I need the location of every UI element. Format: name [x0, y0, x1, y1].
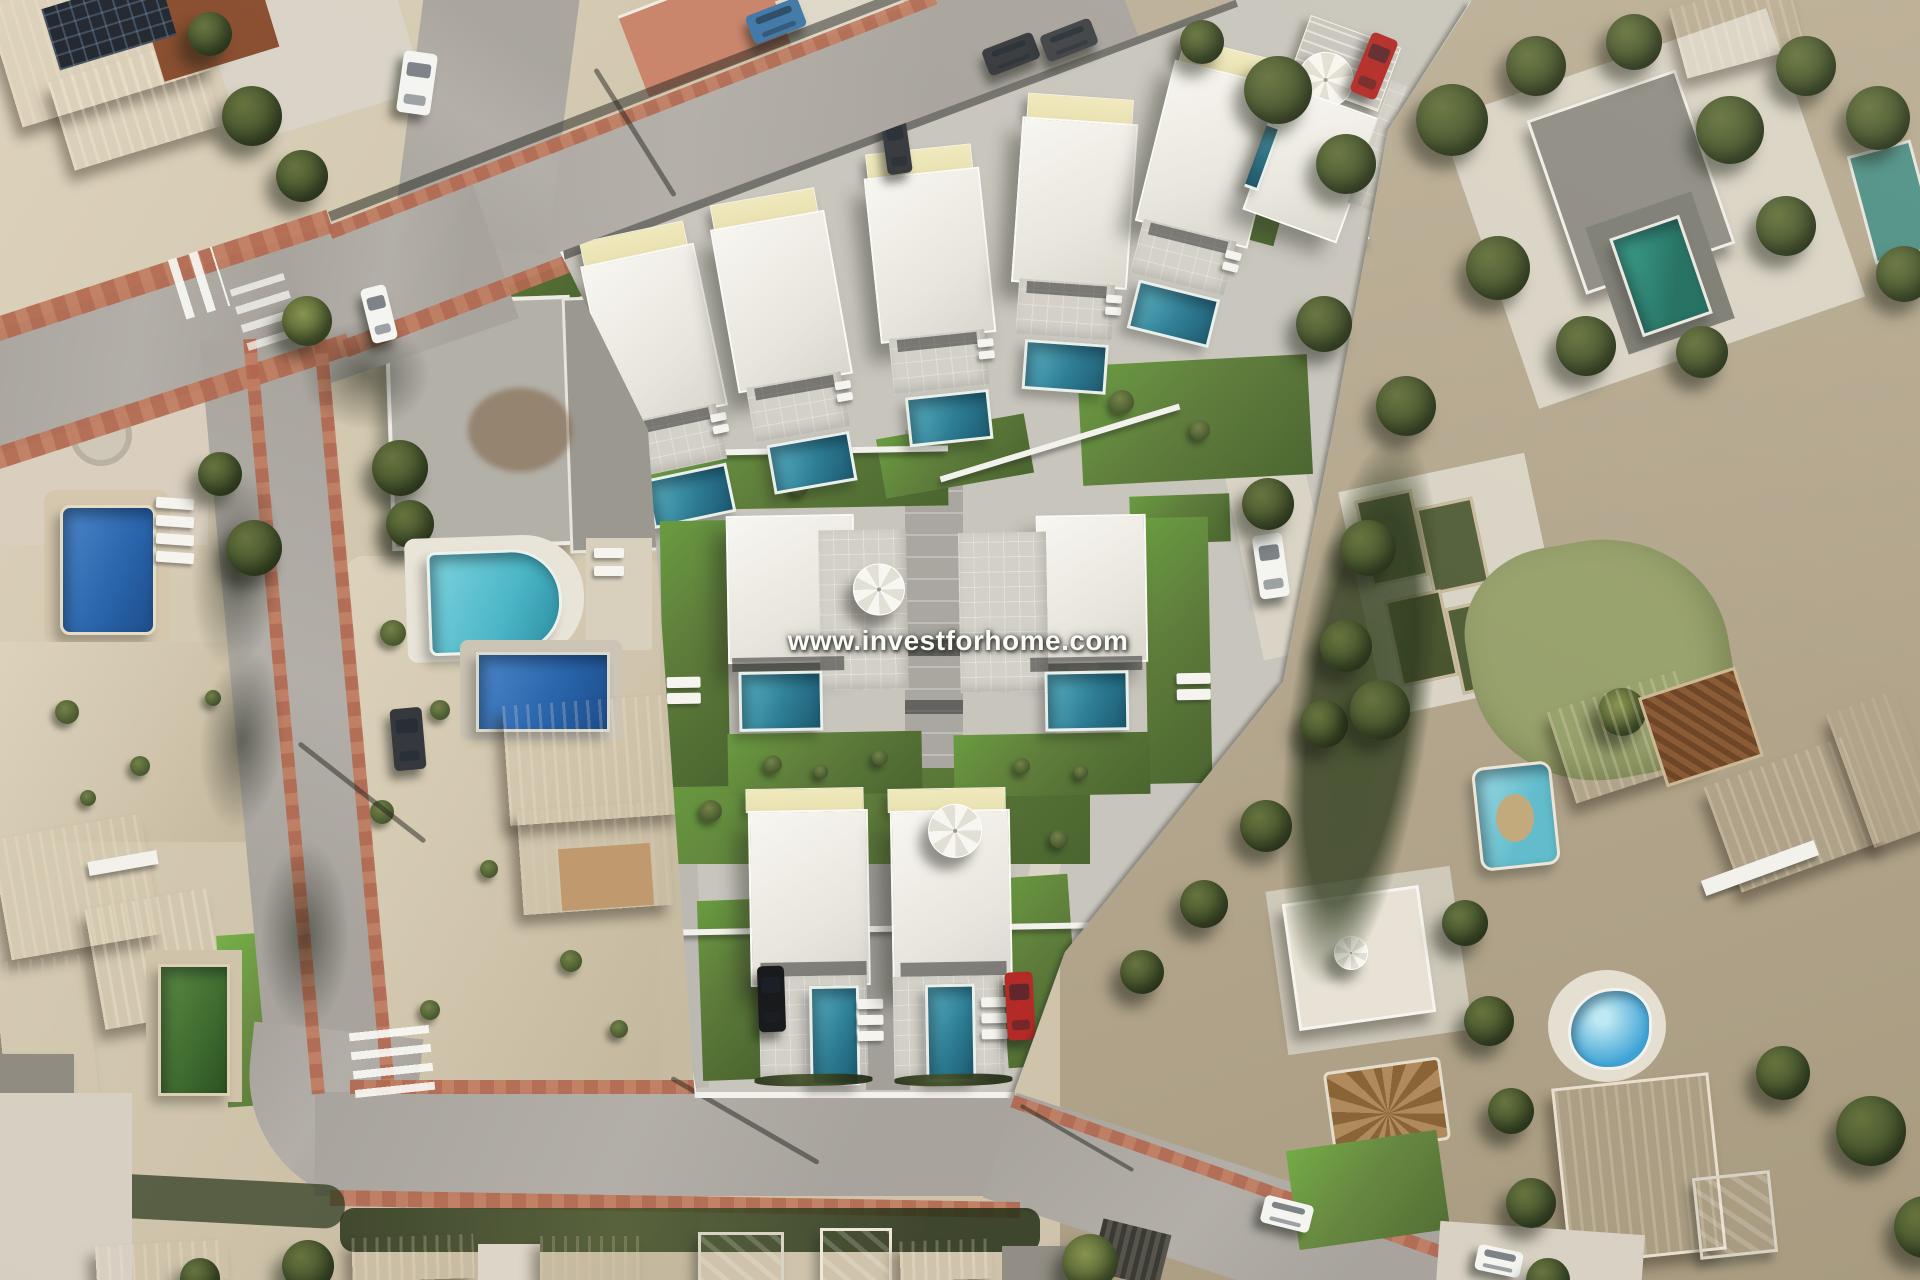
tree — [1242, 478, 1294, 530]
sun-lounger — [836, 392, 853, 403]
aerial-photo: www.investforhome.com — [0, 0, 1920, 1280]
tree — [1676, 326, 1728, 378]
tree — [1376, 376, 1436, 436]
sun-lounger — [1177, 689, 1211, 701]
villa — [1000, 92, 1144, 390]
sun-lounger — [666, 677, 700, 689]
zebra-crossing — [349, 1024, 435, 1098]
car — [389, 707, 426, 772]
sun-lounger — [981, 1013, 1007, 1023]
villa-pool — [809, 985, 861, 1086]
tree — [1556, 316, 1616, 376]
tree — [222, 86, 282, 146]
tree — [1120, 950, 1164, 994]
shrub — [1190, 420, 1210, 440]
green-algae-pool — [158, 964, 230, 1096]
shrub — [430, 700, 450, 720]
shrub — [80, 790, 96, 806]
tree — [1416, 84, 1488, 156]
tree — [1244, 56, 1312, 124]
sun-lounger — [710, 412, 727, 423]
shrub — [610, 1020, 628, 1038]
pool-island — [1496, 794, 1534, 842]
tree — [226, 520, 282, 576]
villa-pool — [1044, 670, 1129, 731]
tree — [188, 12, 232, 56]
shrub — [1050, 830, 1068, 848]
villa-pool — [1022, 339, 1109, 395]
car — [757, 966, 786, 1033]
kidney-pool — [1568, 988, 1652, 1070]
tarp-covered-pool — [698, 1232, 784, 1280]
tree-shadow — [260, 840, 350, 1030]
villa-lawn — [660, 520, 731, 787]
boundary-wall — [693, 1092, 1015, 1099]
tree — [1606, 14, 1662, 70]
sun-lounger — [712, 423, 729, 434]
shrub — [420, 1000, 440, 1020]
shrub — [700, 800, 722, 822]
lawn — [1286, 1130, 1450, 1250]
tree — [1340, 520, 1396, 576]
tree — [1300, 700, 1348, 748]
road-bottom — [315, 1092, 1015, 1196]
sun-lounger — [834, 380, 851, 391]
tree — [1316, 134, 1376, 194]
palm-tree — [282, 296, 332, 346]
tree — [198, 452, 242, 496]
watermark: www.investforhome.com — [788, 625, 1129, 657]
villa-roof — [864, 167, 997, 344]
sun-lounger — [981, 997, 1007, 1007]
tree — [1240, 800, 1292, 852]
tree-shadow — [192, 647, 291, 834]
terracotta-roof — [351, 1234, 474, 1280]
shaded-porch — [732, 656, 844, 672]
sun-lounger — [977, 338, 994, 348]
sun-lounger — [982, 1029, 1008, 1039]
sun-lounger — [857, 999, 883, 1009]
tree — [1836, 1096, 1906, 1166]
shrub — [560, 950, 582, 972]
sun-lounger — [594, 548, 624, 558]
tree — [1296, 296, 1352, 352]
tree — [1696, 96, 1764, 164]
tree — [1756, 1046, 1810, 1100]
tree — [1180, 880, 1228, 928]
car — [1004, 971, 1036, 1040]
villa — [739, 785, 880, 1089]
tree — [1846, 86, 1910, 150]
sun-lounger — [858, 1031, 884, 1041]
sun-lounger — [978, 350, 995, 360]
villa-lawn — [1144, 517, 1213, 784]
tree — [1756, 196, 1816, 256]
tree — [1442, 900, 1488, 946]
tree — [1466, 236, 1530, 300]
shrub — [380, 620, 406, 646]
shrub — [130, 756, 150, 776]
terracotta-roof — [899, 1238, 992, 1280]
tree — [1488, 1088, 1534, 1134]
tarp-covered-pool — [1692, 1170, 1778, 1260]
villa-pool — [925, 984, 977, 1083]
tree — [1506, 1178, 1556, 1228]
shrub — [1110, 390, 1134, 414]
shrub — [480, 860, 498, 878]
swimming-pool — [60, 505, 156, 635]
tree — [1464, 996, 1514, 1046]
villa-pool — [738, 670, 823, 731]
tree — [1180, 20, 1224, 64]
villa-roof — [710, 210, 853, 394]
tarp-covered-pool — [820, 1228, 892, 1280]
sun-lounger — [594, 566, 624, 576]
tree — [1506, 36, 1566, 96]
tree — [1320, 620, 1372, 672]
villa — [857, 142, 1011, 443]
tree — [1350, 680, 1410, 740]
tree — [1776, 36, 1836, 96]
roof-stain — [468, 388, 572, 472]
shrub — [55, 700, 79, 724]
tree — [276, 150, 328, 202]
sun-lounger — [1176, 673, 1210, 685]
tree — [372, 440, 428, 496]
patio — [558, 843, 654, 911]
villa-pool — [905, 389, 994, 448]
terracotta-roof — [540, 1236, 640, 1280]
sun-lounger — [857, 1015, 883, 1025]
villa — [877, 785, 1018, 1089]
front-hedge — [894, 1073, 1012, 1087]
sun-lounger — [667, 693, 701, 705]
patio — [478, 1244, 540, 1280]
